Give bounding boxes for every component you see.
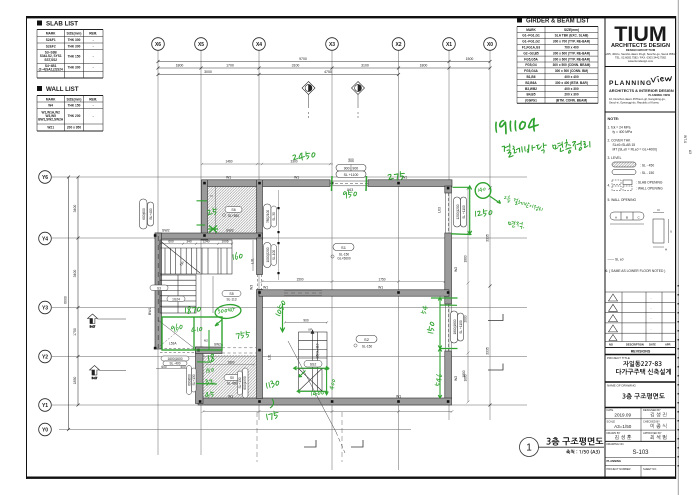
svg-text:(G)WG1: (G)WG1 (525, 99, 537, 103)
svg-text:DESIGN GROUP TIUM: DESIGN GROUP TIUM (626, 48, 656, 52)
svg-text:1700: 1700 (226, 64, 234, 68)
svg-text:. .: . . (650, 297, 652, 300)
svg-text:B5|SL-113: B5|SL-113 (315, 343, 319, 358)
svg-text:GL+5600: GL+5600 (337, 257, 350, 261)
svg-text:SIZE(mm): SIZE(mm) (67, 31, 82, 35)
svg-text:W3: W3 (250, 285, 254, 290)
svg-text:DESIGNED BY: DESIGNED BY (643, 408, 661, 412)
svg-text:PLANNING: PLANNING (609, 80, 652, 87)
svg-text:4.: 4. (608, 184, 611, 188)
svg-text:UP: UP (308, 328, 312, 332)
svg-text:DESCRIPTION: DESCRIPTION (626, 342, 644, 346)
svg-text:SL+550: SL+550 (228, 214, 239, 218)
svg-text:REVISIONS: REVISIONS (631, 350, 651, 354)
svg-text:(BTM. CONN. BEAM): (BTM. CONN. BEAM) (556, 99, 587, 103)
svg-text:SL-450: SL-450 (227, 382, 238, 386)
svg-text:4750: 4750 (324, 70, 332, 74)
svg-text:S1: S1 (341, 245, 347, 250)
svg-text:W2: W2 (454, 267, 458, 272)
svg-text:SS2: SS2 (310, 363, 317, 367)
svg-text:G1~FG1,G2: G1~FG1,G2 (522, 40, 540, 44)
svg-text:X4: X4 (256, 42, 262, 48)
svg-text:S3: S3 (157, 286, 161, 290)
svg-text:W1: W1 (378, 286, 383, 290)
svg-text:B3,WB2: B3,WB2 (525, 87, 537, 91)
svg-text:SL+130: SL+130 (192, 374, 196, 385)
svg-text:200 x 300: 200 x 300 (564, 93, 578, 97)
svg-text:300 x 500 (CONN. BM): 300 x 500 (CONN. BM) (555, 69, 588, 73)
svg-text:X6: X6 (155, 42, 161, 48)
svg-text:1750: 1750 (73, 328, 77, 336)
svg-text:340: 340 (186, 240, 192, 244)
svg-text:SL +1100: SL +1100 (344, 173, 359, 177)
svg-text:G2~G3,B5: G2~G3,B5 (523, 51, 539, 55)
svg-text:1205, 401ho, Seocho-daero 46-g: 1205, 401ho, Seocho-daero 46-gil, Seocho… (605, 52, 677, 56)
svg-text:X3: X3 (329, 42, 335, 48)
svg-text:-: - (93, 66, 94, 70)
svg-text:SW2: SW2 (162, 229, 170, 233)
svg-text:S2: S2 (364, 337, 370, 342)
svg-text:APPROVED BY: APPROVED BY (643, 431, 662, 435)
svg-text:MARK: MARK (46, 97, 56, 101)
svg-text:W21: W21 (47, 125, 54, 129)
svg-text:1800: 1800 (462, 370, 466, 377)
svg-text:REM.: REM. (89, 31, 97, 35)
svg-text:www.tiumdesign.com: www.tiumdesign.com (628, 59, 654, 63)
svg-text:WALL LIST: WALL LIST (46, 86, 79, 93)
svg-text:SL-100: SL-100 (272, 250, 276, 261)
svg-text:200 x 950: 200 x 950 (67, 125, 81, 129)
svg-text:SCALE: SCALE (607, 420, 616, 424)
svg-text:W1: W1 (228, 395, 233, 399)
svg-text:B1,B6: B1,B6 (526, 75, 535, 79)
svg-text:1. fck = 24 MPa: 1. fck = 24 MPa (608, 126, 631, 130)
svg-text:L31: L31 (251, 258, 255, 264)
svg-text:X5: X5 (198, 42, 204, 48)
svg-text:REM.: REM. (89, 97, 97, 101)
svg-text:W1: W1 (226, 176, 231, 180)
svg-text:(2~4)SA2,(2)S24: (2~4)SA2,(2)S24 (39, 67, 63, 71)
svg-text:THK 150: THK 150 (68, 54, 81, 58)
svg-text:1500: 1500 (296, 278, 303, 282)
svg-text:. .: . . (650, 317, 652, 320)
svg-text:2. COVER THK: 2. COVER THK (608, 139, 632, 143)
svg-text:1750: 1750 (378, 278, 385, 282)
svg-text:400 x 300: 400 x 300 (564, 87, 578, 91)
svg-text:1800: 1800 (464, 255, 468, 262)
svg-text:B-17: B-17 (90, 325, 96, 329)
svg-text:: SLAB OPENING: : SLAB OPENING (636, 181, 663, 185)
svg-text:F1,FG1A,G3: F1,FG1A,G3 (522, 46, 540, 50)
svg-text:700 x 400: 700 x 400 (564, 46, 578, 50)
svg-text:400 x 400: 400 x 400 (564, 75, 578, 79)
svg-text:1500: 1500 (466, 57, 474, 61)
svg-text:BW1,SW2,SW2A: BW1,SW2,SW2A (38, 118, 64, 122)
svg-text:SHEET NO.: SHEET NO. (643, 467, 657, 471)
svg-text:Y4: Y4 (42, 237, 48, 243)
svg-text:6000: 6000 (64, 296, 68, 304)
svg-text:FG5,G4: FG5,G4 (525, 63, 537, 67)
svg-text:THK 300: THK 300 (68, 38, 81, 42)
svg-text:. .: . . (650, 327, 652, 330)
svg-text:W1: W1 (263, 286, 268, 290)
svg-text:X1: X1 (446, 42, 452, 48)
svg-text:U: U (670, 230, 672, 234)
svg-text:fy = 400 MPa: fy = 400 MPa (613, 130, 633, 134)
svg-text:GIRDER & BEAM LIST: GIRDER & BEAM LIST (526, 19, 590, 25)
svg-text:PROJECT NUMBER: PROJECT NUMBER (607, 467, 631, 471)
svg-text:H: H (665, 248, 667, 252)
svg-text:300 x 600 (TYP. RE-BAR): 300 x 600 (TYP. RE-BAR) (553, 57, 590, 61)
svg-text:3335: 3335 (486, 234, 490, 242)
svg-text:600|600: 600|600 (187, 374, 191, 386)
svg-text:SL-150: SL-150 (362, 345, 373, 349)
svg-text:U63: U63 (347, 188, 353, 192)
svg-text:1850: 1850 (73, 377, 77, 385)
svg-text:B4,B5: B4,B5 (526, 93, 535, 97)
svg-text:Y3: Y3 (42, 306, 48, 312)
svg-text:SL+130: SL+130 (238, 377, 242, 388)
svg-text:: SL - 150: : SL - 150 (640, 171, 654, 175)
svg-text:1800|1800: 1800|1800 (453, 319, 457, 334)
svg-text:B: B (626, 216, 628, 220)
svg-text:NAME OF DRAWING: NAME OF DRAWING (607, 383, 637, 387)
svg-text:10, Dunchon-daero 457beon-gil,: 10, Dunchon-daero 457beon-gil, Gangdong-… (609, 97, 666, 101)
svg-text:THK 150: THK 150 (68, 103, 81, 107)
svg-text:1006: 1006 (221, 240, 228, 244)
svg-text:3400: 3400 (73, 205, 77, 213)
svg-text:L53A: L53A (169, 342, 177, 346)
svg-text:Y6: Y6 (42, 175, 48, 181)
svg-text:APP.: APP. (665, 342, 671, 346)
svg-text:600: 600 (168, 240, 174, 244)
svg-text:DRAWN BY: DRAWN BY (607, 431, 621, 435)
svg-text:S5: S5 (229, 292, 233, 296)
svg-text:DATE: DATE (649, 342, 656, 346)
svg-text:600|600: 600|600 (142, 208, 146, 220)
svg-text:Seoul-si, Gyeonggi-do, Republi: Seoul-si, Gyeonggi-do, Republic of Korea… (609, 101, 659, 105)
svg-text:SLAB LIST: SLAB LIST (46, 21, 78, 28)
svg-text:1800: 1800 (227, 361, 234, 365)
svg-text:SW2: SW2 (226, 229, 234, 233)
svg-text:Y2: Y2 (42, 355, 48, 361)
svg-text:B-17: B-17 (92, 376, 98, 380)
svg-text:INT-S: INT-S (683, 135, 687, 143)
svg-text:G1~FG1,G1: G1~FG1,G1 (522, 34, 540, 38)
svg-text:6. ( SAME AS LOWER FLOOR NOTED: 6. ( SAME AS LOWER FLOOR NOTED ) (606, 269, 666, 273)
svg-text:: WALL OPENING: : WALL OPENING (636, 187, 663, 191)
svg-text:S0: S0 (230, 376, 234, 380)
svg-text:W4: W4 (48, 103, 53, 107)
svg-text:DRAWING NO.: DRAWING NO. (607, 442, 625, 446)
svg-text:-: - (93, 103, 94, 107)
svg-text:3400: 3400 (73, 270, 77, 278)
svg-text:FG5,G4A: FG5,G4A (524, 69, 538, 73)
svg-text:PROJECT TITLE: PROJECT TITLE (607, 356, 630, 360)
svg-text:900: 900 (348, 158, 354, 162)
svg-text:3300: 3300 (290, 160, 297, 164)
svg-text:TEL. 02.6082.7582 / FAX. 0303.: TEL. 02.6082.7582 / FAX. 0303.3442.7582 (615, 56, 667, 60)
svg-text:A3=1/50: A3=1/50 (614, 424, 632, 429)
svg-text:MT (SL±0 = RL±0 = GL+4000): MT (SL±0 = RL±0 = GL+4000) (613, 148, 658, 152)
svg-text:SL-30: SL-30 (272, 212, 276, 221)
svg-text:780|2100: 780|2100 (266, 210, 270, 223)
svg-text:X2: X2 (395, 42, 401, 48)
svg-text:3000: 3000 (204, 70, 212, 74)
svg-text:A: A (615, 216, 617, 220)
svg-text:THK 200: THK 200 (68, 114, 81, 118)
svg-text:CHECKED BY: CHECKED BY (643, 420, 660, 424)
svg-text:PLANNING VIEW: PLANNING VIEW (648, 93, 670, 97)
svg-text:Y0: Y0 (42, 428, 48, 434)
svg-text:1240: 1240 (202, 240, 209, 244)
svg-text:FG5,G5A: FG5,G5A (524, 57, 538, 61)
svg-text:M2: M2 (204, 339, 208, 343)
svg-text:W2: W2 (454, 376, 458, 381)
svg-text:1460: 1460 (225, 160, 232, 164)
svg-text:1000|2200: 1000|2200 (266, 247, 270, 262)
svg-text:PLANNING: PLANNING (607, 459, 622, 463)
svg-text:NOTE:: NOTE: (608, 117, 620, 121)
svg-text:SL±0=SLAB 15: SL±0=SLAB 15 (613, 143, 636, 147)
svg-text:3100: 3100 (292, 64, 300, 68)
svg-text:300 x 700 (TYP. RE-BAR): 300 x 700 (TYP. RE-BAR) (553, 40, 590, 44)
svg-text:SL +1100: SL +1100 (462, 205, 466, 219)
svg-text:. .: . . (650, 307, 652, 310)
svg-text:SIZE(mm): SIZE(mm) (564, 28, 579, 32)
svg-text:300 x 500 (CONN. BEAM): 300 x 500 (CONN. BEAM) (553, 63, 591, 67)
svg-text:SL +1100: SL +1100 (459, 320, 463, 334)
svg-text:S2&F2: S2&F2 (46, 44, 56, 48)
svg-text:-: - (93, 54, 94, 58)
svg-text:3335: 3335 (486, 347, 490, 355)
svg-text:SL-113: SL-113 (226, 298, 236, 302)
svg-text:THK 300: THK 300 (68, 66, 81, 70)
svg-text:3100: 3100 (361, 64, 369, 68)
svg-text:2000: 2000 (464, 315, 468, 322)
svg-text:DATE: DATE (607, 408, 614, 412)
svg-text:600|1950: 600|1950 (243, 376, 247, 389)
svg-text:SLA TBK (EXC. SLAB): SLA TBK (EXC. SLAB) (555, 34, 589, 38)
svg-text:2019.09: 2019.09 (614, 413, 631, 418)
svg-text:3. LEVEL: 3. LEVEL (608, 156, 622, 160)
svg-text:BW1: BW1 (148, 307, 152, 315)
svg-text:NO: NO (609, 342, 613, 346)
svg-text:1: 1 (526, 443, 532, 454)
svg-text:L31: L31 (268, 354, 272, 360)
svg-text:X0: X0 (487, 42, 493, 48)
svg-text:5. WALL OPENING: 5. WALL OPENING (608, 198, 637, 202)
svg-text:A3: A3 (688, 150, 692, 154)
svg-text:L63: L63 (438, 207, 442, 213)
svg-text:ARCHITECTS & INTERIOR DESIGN: ARCHITECTS & INTERIOR DESIGN (609, 88, 674, 93)
svg-text:MARK: MARK (46, 31, 56, 35)
svg-text:Y1: Y1 (42, 403, 48, 409)
svg-text:BL+400: BL+400 (149, 208, 153, 219)
svg-text:THK 300: THK 300 (68, 44, 81, 48)
svg-text:SST,SS2: SST,SS2 (44, 58, 57, 62)
svg-text:: SL - 450: : SL - 450 (640, 164, 654, 168)
svg-text:900: 900 (303, 318, 309, 322)
svg-text:300 x 400 (BTM. BAR): 300 x 400 (BTM. BAR) (555, 81, 588, 85)
svg-text:B2,B6A: B2,B6A (525, 81, 537, 85)
svg-text:1800: 1800 (176, 64, 184, 68)
svg-text:1G24: 1G24 (172, 297, 180, 301)
svg-text:1600|1600: 1600|1600 (167, 357, 182, 361)
svg-text:S-103: S-103 (632, 450, 649, 456)
svg-text:W1: W1 (294, 176, 299, 180)
svg-text:-: - (93, 38, 94, 42)
svg-text:-: - (93, 44, 94, 48)
svg-text:600: 600 (161, 365, 167, 369)
svg-text:300 x 600 (TYP. RE-BAR): 300 x 600 (TYP. RE-BAR) (553, 51, 590, 55)
svg-text:-: - (93, 114, 94, 118)
svg-text:S6: S6 (231, 208, 235, 212)
svg-text:MARK: MARK (526, 28, 536, 32)
svg-text:400: 400 (180, 365, 186, 369)
svg-text:SIZE(mm): SIZE(mm) (67, 97, 82, 101)
svg-text:1: 1 (210, 195, 214, 197)
svg-text:1800: 1800 (420, 64, 428, 68)
svg-text:1200|1200: 1200|1200 (456, 204, 460, 219)
svg-text:SL -400: SL -400 (169, 362, 180, 366)
svg-text:S2&F1: S2&F1 (46, 38, 56, 42)
svg-text:—— SL ±0: —— SL ±0 (608, 258, 624, 262)
svg-text:9700: 9700 (299, 57, 307, 61)
svg-text:W1: W1 (396, 395, 401, 399)
